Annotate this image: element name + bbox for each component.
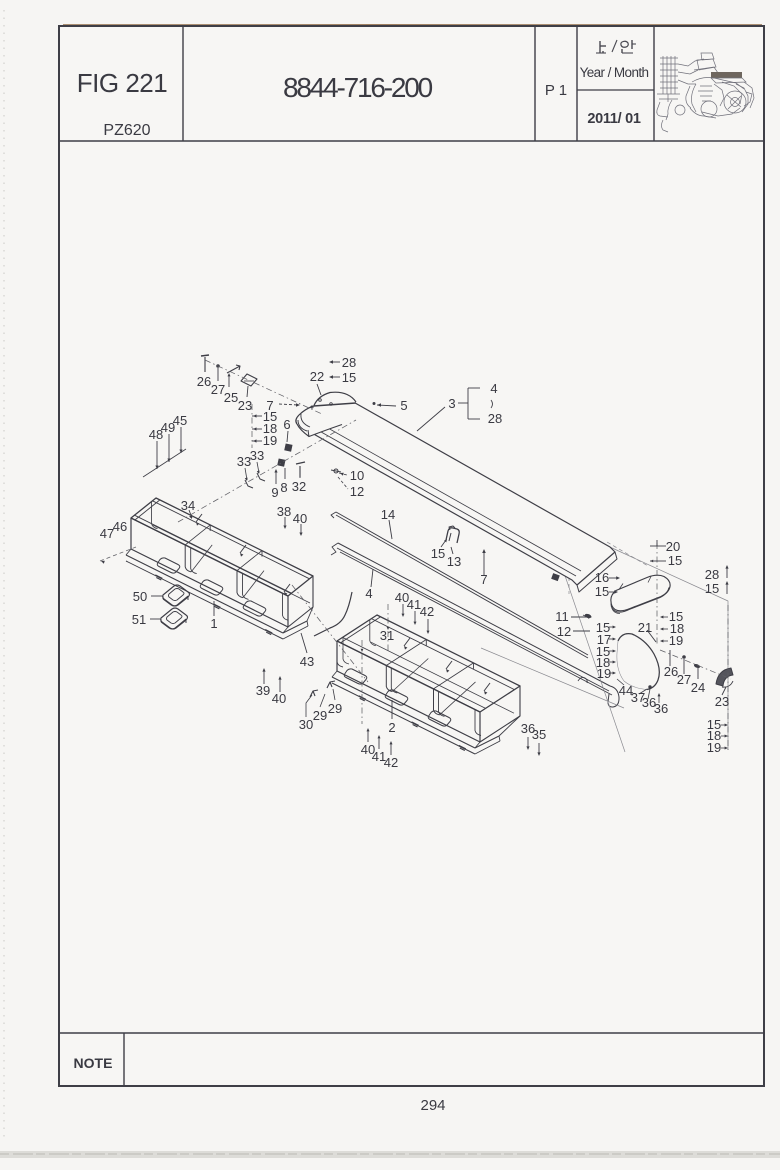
svg-text:40: 40 bbox=[272, 691, 286, 706]
svg-text:46: 46 bbox=[113, 519, 127, 534]
svg-text:26: 26 bbox=[197, 374, 211, 389]
svg-text:9: 9 bbox=[271, 485, 278, 500]
svg-text:P 1: P 1 bbox=[545, 82, 567, 99]
svg-text:45: 45 bbox=[173, 413, 187, 428]
svg-text:51: 51 bbox=[132, 612, 146, 627]
svg-text:22: 22 bbox=[310, 369, 324, 384]
svg-text:28: 28 bbox=[342, 355, 356, 370]
svg-text:294: 294 bbox=[420, 1097, 445, 1114]
svg-text:28: 28 bbox=[488, 411, 502, 426]
svg-text:11: 11 bbox=[555, 609, 569, 624]
svg-text:14: 14 bbox=[381, 507, 395, 522]
svg-text:50: 50 bbox=[133, 589, 147, 604]
svg-text:4: 4 bbox=[490, 381, 497, 396]
svg-text:5: 5 bbox=[400, 398, 407, 413]
svg-text:NOTE: NOTE bbox=[74, 1055, 113, 1071]
svg-text:32: 32 bbox=[292, 479, 306, 494]
svg-text:FIG 221: FIG 221 bbox=[77, 68, 167, 98]
svg-text:28: 28 bbox=[705, 567, 719, 582]
svg-text:19: 19 bbox=[263, 433, 277, 448]
svg-text:15: 15 bbox=[595, 584, 609, 599]
svg-text:27: 27 bbox=[677, 672, 691, 687]
svg-text:15: 15 bbox=[668, 553, 682, 568]
svg-text:13: 13 bbox=[447, 554, 461, 569]
svg-text:16: 16 bbox=[595, 570, 609, 585]
svg-text:2011/ 01: 2011/ 01 bbox=[587, 111, 640, 127]
svg-text:19: 19 bbox=[707, 740, 721, 755]
svg-text:3: 3 bbox=[448, 396, 455, 411]
svg-text:19: 19 bbox=[597, 666, 611, 681]
svg-text:PZ620: PZ620 bbox=[103, 122, 150, 139]
svg-text:33: 33 bbox=[250, 448, 264, 463]
svg-text:29: 29 bbox=[313, 708, 327, 723]
svg-text:21: 21 bbox=[638, 620, 652, 635]
svg-text:43: 43 bbox=[300, 654, 314, 669]
svg-text:42: 42 bbox=[384, 755, 398, 770]
svg-text:34: 34 bbox=[181, 498, 195, 513]
svg-text:19: 19 bbox=[669, 633, 683, 648]
svg-text:15: 15 bbox=[705, 581, 719, 596]
svg-text:29: 29 bbox=[328, 701, 342, 716]
svg-text:36: 36 bbox=[654, 701, 668, 716]
svg-text:10: 10 bbox=[350, 468, 364, 483]
svg-text:39: 39 bbox=[256, 683, 270, 698]
svg-text:8: 8 bbox=[280, 480, 287, 495]
svg-text:23: 23 bbox=[715, 694, 729, 709]
svg-text:24: 24 bbox=[691, 680, 705, 695]
svg-text:1: 1 bbox=[210, 616, 217, 631]
svg-text:8844-716-200: 8844-716-200 bbox=[283, 72, 433, 103]
svg-text:30: 30 bbox=[299, 717, 313, 732]
svg-text:4: 4 bbox=[365, 586, 372, 601]
svg-text:12: 12 bbox=[350, 484, 364, 499]
svg-text:35: 35 bbox=[532, 727, 546, 742]
svg-text:25: 25 bbox=[224, 390, 238, 405]
svg-text:15: 15 bbox=[342, 370, 356, 385]
svg-text:Year / Month: Year / Month bbox=[580, 65, 649, 80]
svg-text:2: 2 bbox=[388, 720, 395, 735]
svg-text:31: 31 bbox=[380, 628, 394, 643]
svg-text:7: 7 bbox=[480, 572, 487, 587]
svg-text:15: 15 bbox=[431, 546, 445, 561]
svg-text:38: 38 bbox=[277, 504, 291, 519]
svg-text:12: 12 bbox=[557, 624, 571, 639]
svg-text:40: 40 bbox=[293, 511, 307, 526]
svg-text:20: 20 bbox=[666, 539, 680, 554]
svg-text:23: 23 bbox=[238, 398, 252, 413]
svg-text:6: 6 bbox=[283, 417, 290, 432]
svg-text:42: 42 bbox=[420, 604, 434, 619]
